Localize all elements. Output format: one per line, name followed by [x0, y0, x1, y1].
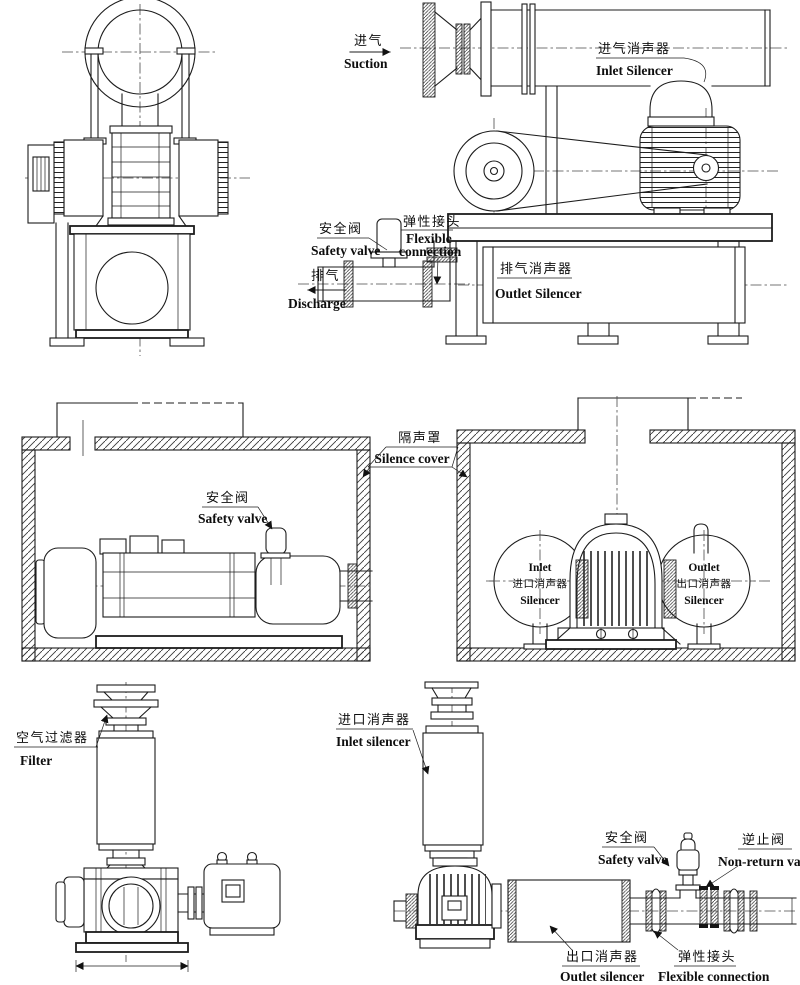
side-flange-left — [576, 560, 588, 618]
inlet-circle-zh: 进口消声器 — [513, 577, 568, 590]
flexible-label-zh: 弹性接头 — [678, 949, 736, 965]
discharge-label-zh: 排气 — [311, 268, 340, 284]
blower-body — [103, 553, 255, 617]
figure-discharge-line: 进口消声器 Inlet silencer 安全阀 Safety valve 逆止… — [336, 682, 800, 984]
left-gearbox — [56, 877, 84, 927]
elbow-dome — [650, 81, 712, 117]
inlet-silencer-label-zh: 进口消声器 — [338, 713, 411, 728]
outlet-silencer-label-en: Outlet Silencer — [495, 286, 582, 301]
inlet-funnel — [425, 682, 478, 719]
suction-label: 进气 Suction — [344, 33, 390, 71]
pipe-flange — [750, 891, 757, 931]
safety-valve-label-zh: 安全阀 — [319, 221, 363, 237]
left-gear-housing — [28, 140, 103, 223]
flexible-label-zh: 弹性接头 — [403, 214, 461, 230]
leader-line — [654, 931, 678, 950]
safety-valve-label-zh: 安全阀 — [206, 490, 250, 506]
safety-valve-label-en: Safety valve — [311, 243, 380, 258]
discharge-label: 排气 Discharge — [288, 268, 346, 311]
leader-line — [706, 866, 738, 887]
suction-label-en: Suction — [344, 56, 388, 71]
left-flange — [406, 894, 417, 928]
blower-housing — [84, 868, 178, 935]
coupling — [178, 887, 204, 919]
inlet-silencer-label: 进气消声器 Inlet Silencer — [596, 41, 706, 82]
safety-valve — [676, 833, 700, 898]
suction-inlet-cone — [423, 2, 491, 97]
platform — [448, 214, 772, 241]
safety-valve-label-zh: 安全阀 — [605, 830, 649, 846]
equipment-installation-diagram: 进气 Suction 进气消声器 Inlet Silencer 安全阀 Safe… — [0, 0, 800, 985]
outlet-circle-en1: Outlet — [688, 562, 719, 574]
filter-label-zh: 空气过滤器 — [16, 730, 89, 746]
figure-blower-front-view — [25, 0, 250, 356]
outlet-silencer-cylinder — [508, 880, 630, 942]
figure-filter-unit: 空气过滤器 Filter — [14, 682, 280, 972]
figure-enclosure-end-view: Inlet 进口消声器 Silencer Outlet 出口消声器 Silenc… — [363, 396, 795, 661]
silence-cover-label-zh: 隔声罩 — [398, 431, 442, 446]
flexible-connection-label: 弹性接头 Flexible connection — [654, 931, 770, 984]
blower-unit-inside — [36, 528, 372, 648]
inlet-silencer-label: 进口消声器 Inlet silencer — [336, 713, 428, 774]
filter-label-en: Filter — [20, 753, 52, 768]
flexible-label-en: Flexible connection — [658, 969, 770, 984]
blower-pulley — [694, 156, 719, 181]
outlet-silencer-label-en: Outlet silencer — [560, 969, 644, 984]
outlet-silencer-base — [50, 223, 204, 346]
safety-valve-label: 安全阀 Safety valve — [198, 490, 272, 529]
discharge-casing — [256, 556, 340, 624]
inlet-silencer-cylinder — [423, 726, 483, 864]
figure-side-assembly: 进气 Suction 进气消声器 Inlet Silencer 安全阀 Safe… — [288, 2, 788, 344]
diagram-canvas: 进气 Suction 进气消声器 Inlet Silencer 安全阀 Safe… — [0, 0, 800, 985]
filter-label: 空气过滤器 Filter — [14, 715, 107, 768]
non-return-valve — [699, 886, 719, 928]
base-frame — [96, 636, 342, 648]
non-return-valve-label: 逆止阀 Non-return valve — [706, 832, 800, 887]
inlet-circle-en1: Inlet — [529, 562, 552, 574]
outlet-circle-zh: 出口消声器 — [677, 577, 732, 590]
suction-label-zh: 进气 — [354, 33, 383, 49]
safety-valve-label-en: Safety valve — [198, 511, 267, 526]
silence-cover-label: 隔声罩 Silence cover — [363, 431, 467, 477]
inlet-circle-en2: Silencer — [520, 595, 560, 607]
drive-motor — [204, 853, 280, 936]
motor — [44, 548, 96, 638]
safety-valve-label: 安全阀 Safety valve — [311, 221, 387, 258]
roof-duct — [57, 403, 243, 437]
blower-casing — [108, 126, 174, 225]
safety-valve — [266, 528, 286, 554]
non-return-label-en: Non-return valve — [718, 854, 800, 869]
blower-barrel — [640, 126, 740, 215]
right-drive-housing — [179, 140, 228, 216]
flexible-label-en2: connection — [399, 244, 462, 259]
inlet-silencer-label-zh: 进气消声器 — [598, 41, 671, 57]
outlet-silencer-label-zh: 排气消声器 — [500, 261, 573, 277]
figure-enclosure-side-view: 安全阀 Safety valve — [22, 403, 372, 661]
inlet-silencer-label-en: Inlet Silencer — [596, 63, 673, 78]
inlet-silencer-label-en: Inlet silencer — [336, 734, 411, 749]
discharge-label-en: Discharge — [288, 296, 346, 311]
roof-duct — [578, 398, 742, 430]
outlet-silencer-label-zh: 出口消声器 — [566, 950, 639, 965]
drive-pulley — [454, 131, 534, 211]
outlet-circle-en2: Silencer — [684, 595, 724, 607]
blower-dome — [394, 858, 501, 948]
side-flange-right — [664, 560, 676, 618]
safety-valve-label-en: Safety valve — [598, 852, 667, 867]
leader-line — [684, 58, 706, 82]
safety-valve-label: 安全阀 Safety valve — [598, 830, 669, 867]
pipe-flange — [348, 564, 357, 608]
non-return-label-zh: 逆止阀 — [742, 832, 786, 848]
base-plate — [76, 932, 188, 972]
outlet-silencer-cylinder — [483, 247, 745, 323]
silence-cover-label-en: Silence cover — [374, 451, 449, 466]
